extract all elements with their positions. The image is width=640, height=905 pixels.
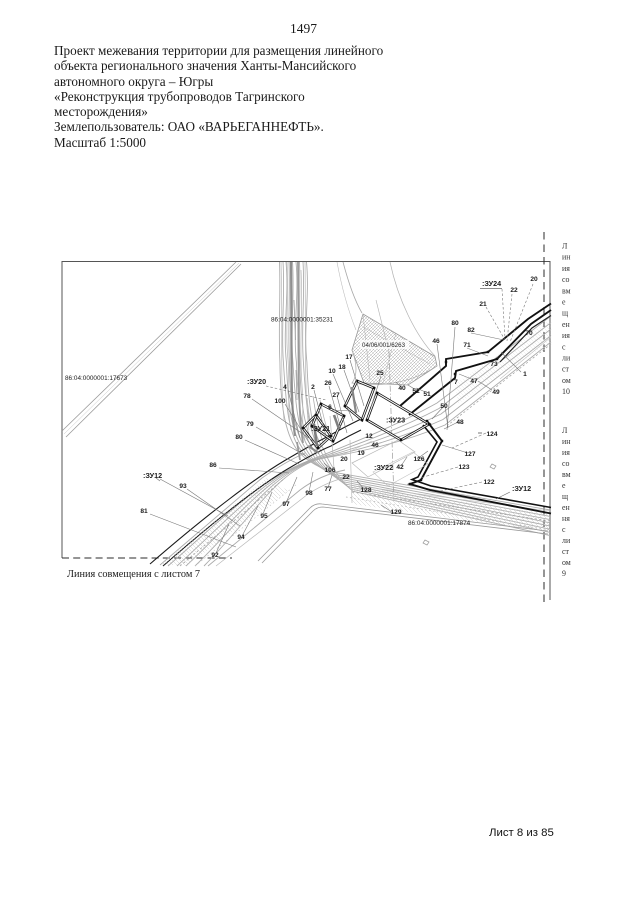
svg-text:97: 97 — [282, 501, 290, 508]
svg-text:70: 70 — [525, 330, 533, 337]
svg-text::ЗУ21: :ЗУ21 — [311, 424, 330, 433]
svg-text:126: 126 — [413, 456, 424, 463]
svg-text:106: 106 — [324, 467, 335, 474]
svg-text:86:04:0000001:17874: 86:04:0000001:17874 — [408, 520, 471, 527]
svg-text:щ: щ — [562, 492, 568, 501]
svg-text:18: 18 — [338, 364, 346, 371]
svg-text:с: с — [562, 342, 566, 351]
svg-text:ня: ня — [562, 514, 570, 523]
svg-text:79: 79 — [246, 421, 254, 428]
svg-text:ия: ия — [562, 264, 570, 273]
svg-text:26: 26 — [324, 380, 332, 387]
svg-text:27: 27 — [332, 392, 340, 399]
svg-text:71: 71 — [463, 342, 471, 349]
svg-text:04/06/001/6263: 04/06/001/6263 — [362, 342, 406, 349]
svg-text:21: 21 — [479, 301, 487, 308]
svg-text:9: 9 — [562, 569, 566, 578]
svg-text:ом: ом — [562, 376, 571, 385]
svg-text::ЗУ12: :ЗУ12 — [512, 484, 531, 493]
svg-text:22: 22 — [510, 287, 518, 294]
svg-text::ЗУ12: :ЗУ12 — [143, 471, 162, 480]
svg-text:128: 128 — [360, 487, 371, 494]
svg-text:17: 17 — [345, 354, 353, 361]
svg-text:ст: ст — [562, 547, 570, 556]
svg-text:щ: щ — [562, 309, 568, 318]
svg-text:с: с — [562, 525, 566, 534]
svg-text:123: 123 — [458, 464, 469, 471]
svg-text:1: 1 — [523, 371, 527, 378]
svg-text:80: 80 — [235, 434, 243, 441]
svg-text:86:04:0000001:35231: 86:04:0000001:35231 — [271, 317, 334, 324]
svg-text:вм: вм — [562, 286, 571, 295]
svg-text:19: 19 — [357, 450, 365, 457]
svg-text:ен: ен — [562, 320, 571, 329]
svg-text:78: 78 — [243, 393, 251, 400]
svg-text:ин: ин — [562, 437, 571, 446]
svg-text::ЗУ22: :ЗУ22 — [374, 463, 393, 472]
svg-text:е: е — [562, 298, 566, 307]
svg-text:ли: ли — [562, 536, 571, 545]
svg-text:вм: вм — [562, 470, 571, 479]
svg-text:82: 82 — [467, 327, 475, 334]
svg-text:129: 129 — [390, 509, 401, 516]
svg-text:51: 51 — [423, 391, 431, 398]
svg-text:ин: ин — [562, 253, 571, 262]
svg-text:Л: Л — [562, 242, 568, 251]
svg-text:ия: ия — [562, 331, 570, 340]
svg-text:42: 42 — [396, 464, 404, 471]
svg-text:93: 93 — [179, 483, 187, 490]
svg-text:73: 73 — [490, 361, 498, 368]
svg-text:4: 4 — [283, 384, 287, 391]
svg-text:86:04:0000001:17673: 86:04:0000001:17673 — [65, 375, 128, 382]
svg-text:ст: ст — [562, 365, 570, 374]
svg-text:7: 7 — [454, 379, 458, 386]
svg-text:92: 92 — [211, 552, 219, 559]
svg-text::ЗУ23: :ЗУ23 — [386, 416, 405, 425]
svg-text:10: 10 — [328, 368, 336, 375]
svg-text:51: 51 — [412, 388, 420, 395]
svg-text:ли: ли — [562, 354, 571, 363]
svg-text:25: 25 — [376, 370, 384, 377]
svg-text:124: 124 — [486, 431, 497, 438]
svg-text:47: 47 — [470, 378, 478, 385]
svg-text:со: со — [562, 459, 570, 468]
svg-text:20: 20 — [340, 456, 348, 463]
svg-text:со: со — [562, 275, 570, 284]
svg-text:ия: ия — [562, 448, 570, 457]
svg-text:Л: Л — [562, 426, 568, 435]
svg-text:ен: ен — [562, 503, 571, 512]
svg-text:20: 20 — [530, 276, 538, 283]
svg-text:10: 10 — [562, 387, 570, 396]
svg-text:80: 80 — [451, 320, 459, 327]
svg-text:98: 98 — [305, 490, 313, 497]
svg-text:40: 40 — [398, 385, 406, 392]
svg-text:46: 46 — [432, 338, 440, 345]
svg-text:22: 22 — [342, 474, 350, 481]
svg-text::ЗУ24: :ЗУ24 — [482, 279, 501, 288]
svg-text:46: 46 — [371, 442, 379, 449]
svg-text:95: 95 — [260, 513, 268, 520]
svg-text:86: 86 — [209, 462, 217, 469]
svg-text:49: 49 — [492, 389, 500, 396]
svg-text:122: 122 — [483, 479, 494, 486]
svg-text:ом: ом — [562, 558, 571, 567]
svg-text:12: 12 — [365, 433, 373, 440]
svg-text:48: 48 — [456, 419, 464, 426]
svg-text:94: 94 — [237, 534, 245, 541]
svg-text:Линия совмещения с листом 7: Линия совмещения с листом 7 — [67, 569, 200, 580]
svg-text::ЗУ20: :ЗУ20 — [247, 377, 266, 386]
svg-text:6: 6 — [328, 404, 332, 411]
svg-text:50: 50 — [440, 403, 448, 410]
svg-text:100: 100 — [274, 398, 285, 405]
svg-text:81: 81 — [140, 508, 148, 515]
svg-text:2: 2 — [311, 384, 315, 391]
svg-text:77: 77 — [324, 486, 332, 493]
svg-text:127: 127 — [464, 451, 475, 458]
svg-text:е: е — [562, 481, 566, 490]
